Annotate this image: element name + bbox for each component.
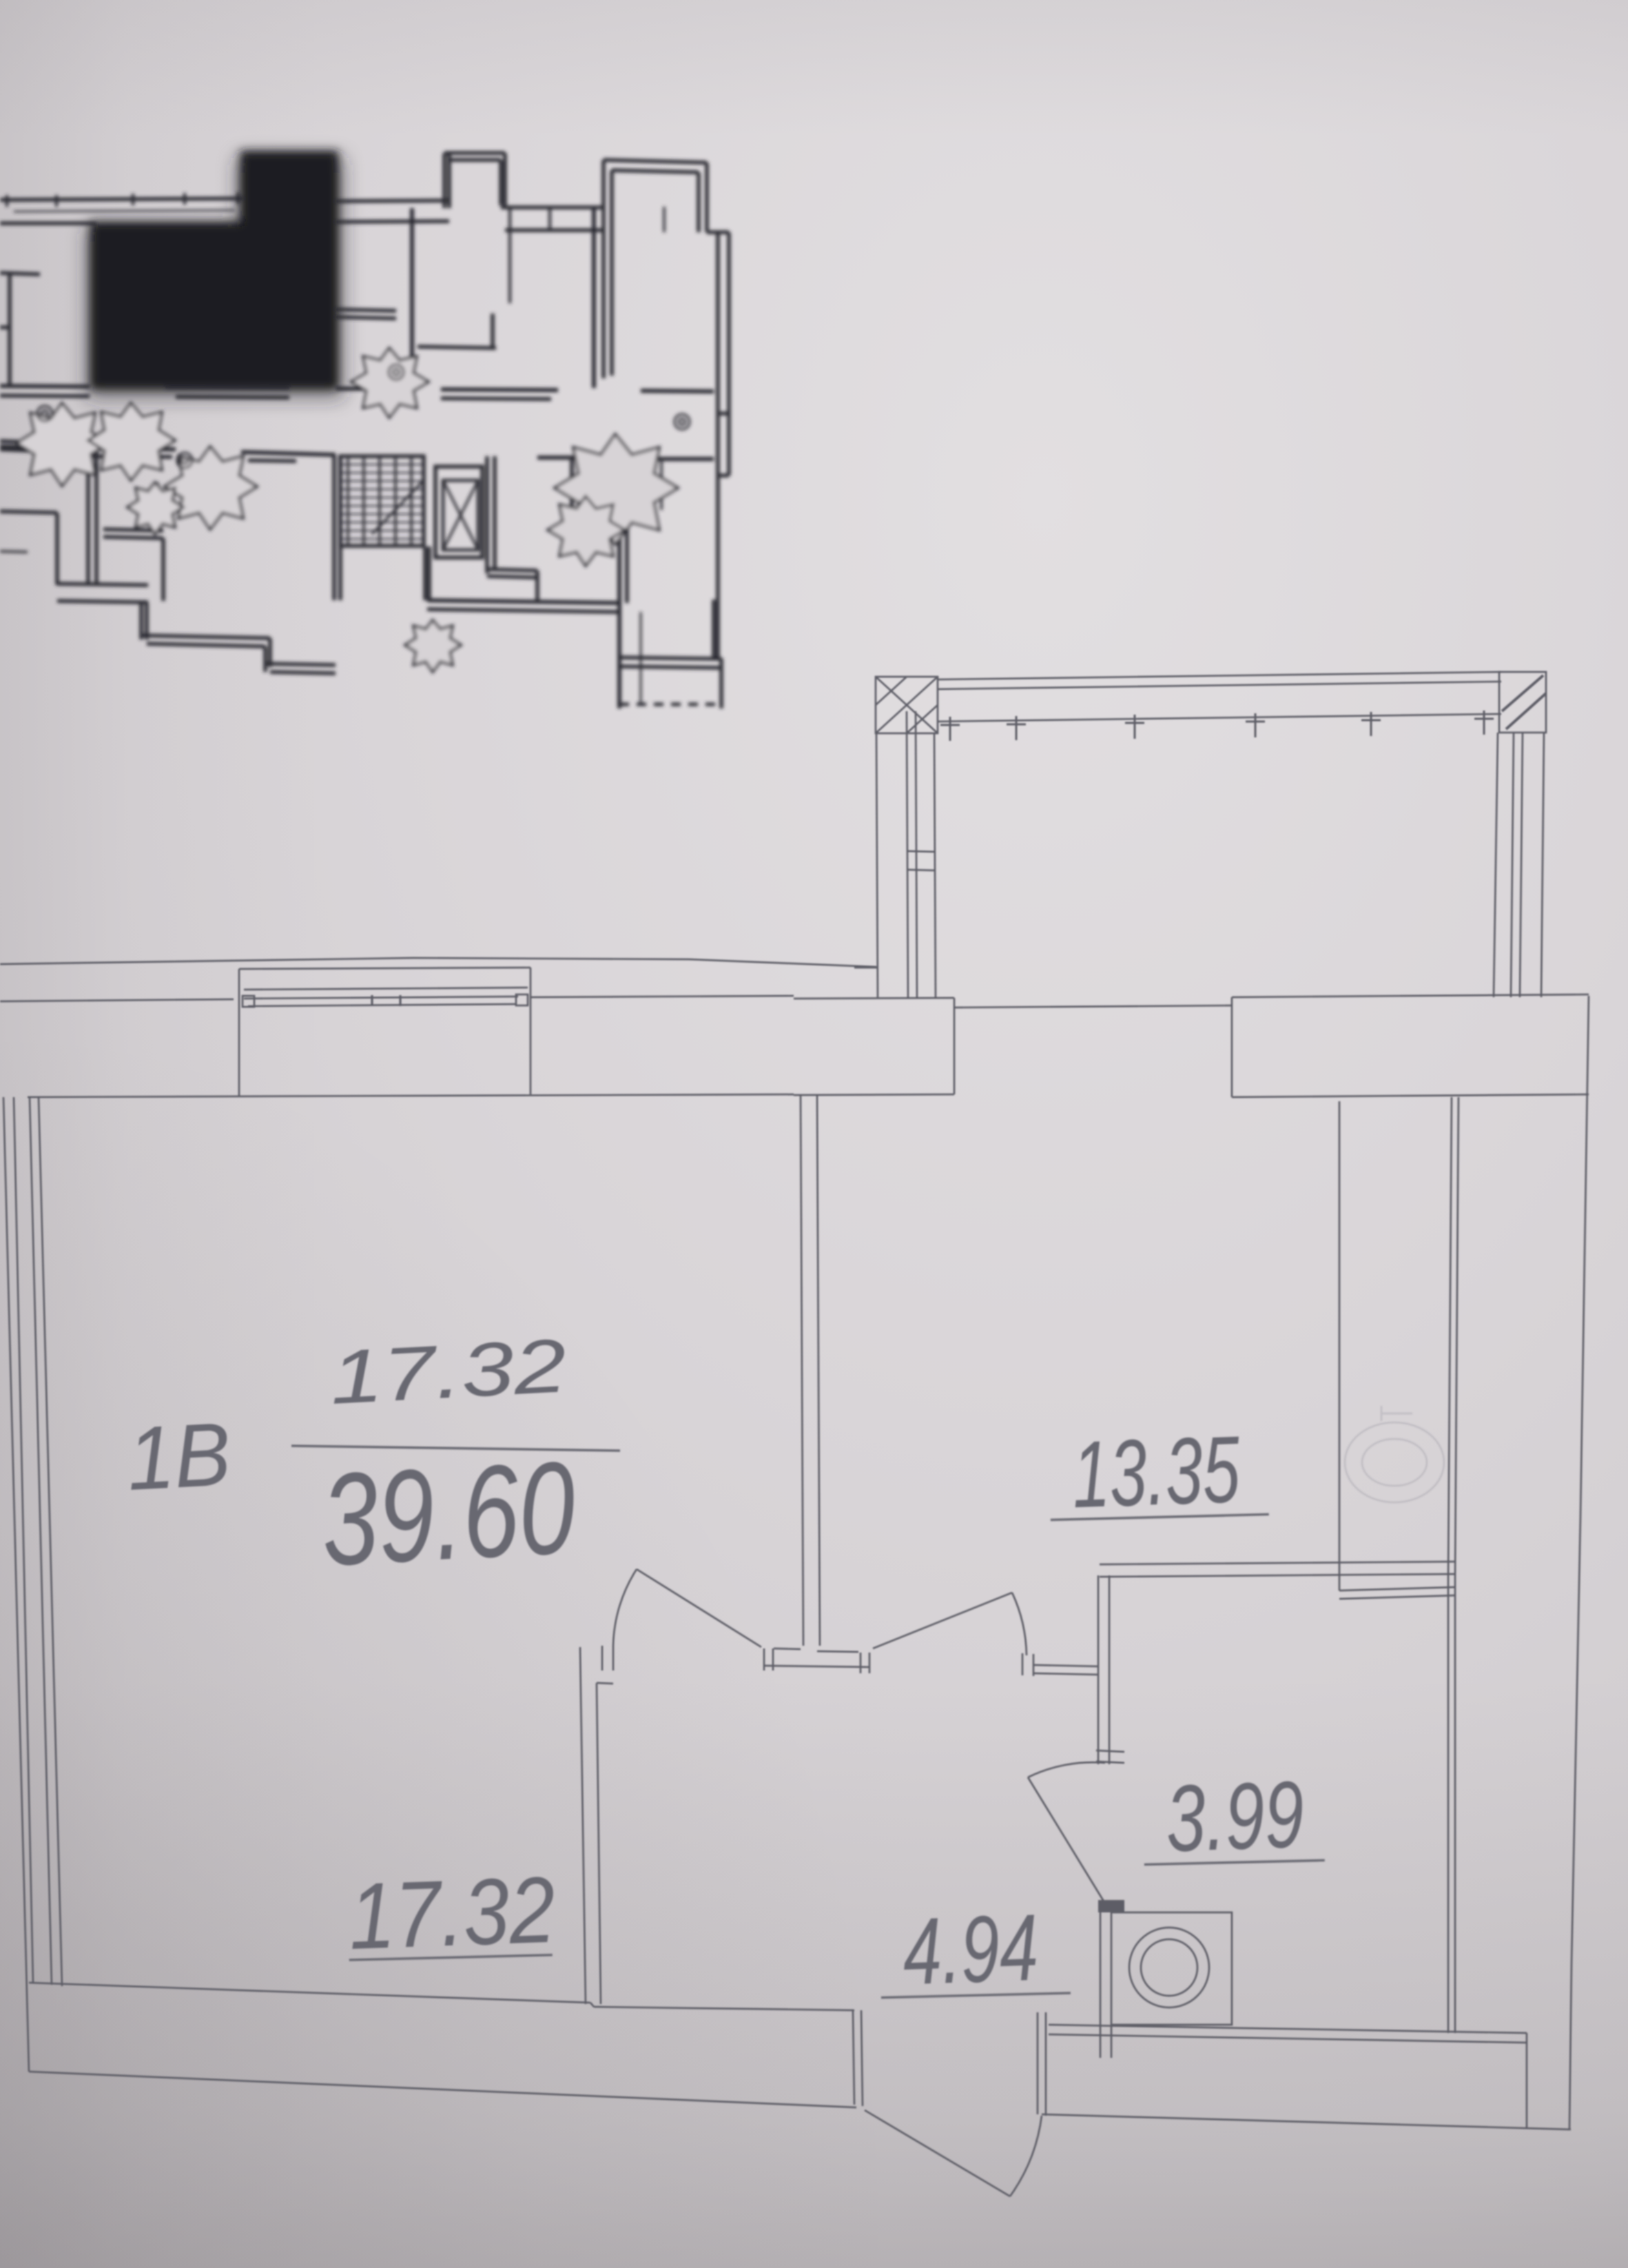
svg-text:13.35: 13.35: [1071, 1417, 1242, 1528]
svg-text:1В: 1В: [125, 1403, 233, 1509]
svg-text:17.32: 17.32: [328, 1323, 568, 1420]
svg-text:17.32: 17.32: [347, 1857, 557, 1969]
svg-text:4.94: 4.94: [901, 1895, 1040, 2005]
svg-text:39.60: 39.60: [318, 1434, 579, 1593]
svg-text:3.99: 3.99: [1164, 1761, 1306, 1872]
